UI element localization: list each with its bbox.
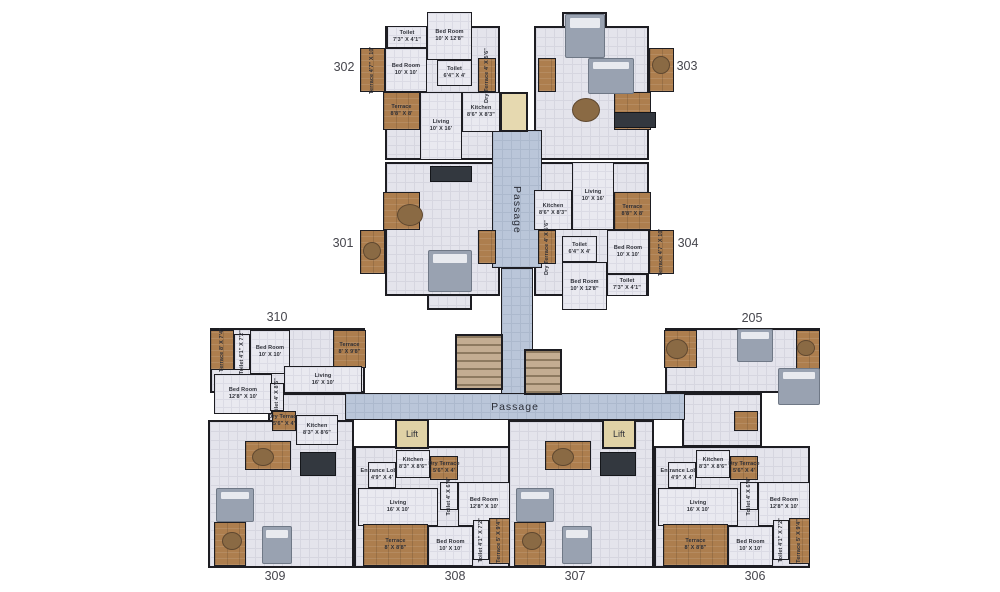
room-label: Bed Room10' X 10' (392, 63, 420, 77)
room-name: Dry Terrace (728, 461, 759, 468)
lift-label: Lift (613, 429, 625, 439)
table-301 (397, 204, 423, 226)
room-dimensions: 8'8" X 8' (621, 211, 643, 218)
room-dimensions: 12'8" X 10' (470, 504, 498, 511)
room-label: Living16' X 10' (312, 373, 334, 387)
room-name: Terrace (621, 204, 643, 211)
bed-205 (778, 368, 820, 405)
room-label: Terrace4'7" X 10' (658, 229, 665, 276)
table-205 (666, 339, 688, 359)
staircase (455, 334, 503, 390)
room-label: Terrace5' X 9'4" (796, 519, 803, 563)
room-dimensions: 10' X 10' (736, 546, 764, 553)
room-living-310: Living16' X 10' (284, 366, 362, 393)
terrace-303 (538, 58, 556, 92)
room-dimensions: 6'4" X 4' (443, 73, 465, 80)
room-toilet-302: Toilet6'4" X 4' (437, 60, 472, 86)
room-toilet-306: Toilet4' X 6'4" (740, 482, 758, 510)
lift: Lift (602, 419, 636, 449)
room-name: Toilet (568, 242, 590, 249)
room-label: Living16' X 10' (387, 500, 409, 514)
room-name: Living (582, 189, 604, 196)
room-toilet-308: Toilet4'1" X 7'2" (473, 520, 489, 560)
room-name: Kitchen (399, 457, 427, 464)
room-name: Living (430, 119, 452, 126)
unit-number-306: 306 (733, 569, 777, 583)
unit-number-310: 310 (255, 310, 299, 324)
terrace-205 (734, 411, 758, 431)
room-living-308: Living16' X 10' (358, 488, 438, 526)
bed-309 (216, 488, 254, 522)
room-label: Bed Room12'8" X 10' (470, 497, 498, 511)
room-dimensions: 16' X 10' (312, 380, 334, 387)
elevator-shaft (500, 92, 528, 132)
table-309 (222, 532, 242, 550)
room-dimensions: 8'6" X 8'3" (539, 210, 567, 217)
bed-303 (588, 58, 634, 94)
room-label: Toilet6'4" X 4' (568, 242, 590, 256)
room-bed-room-302: Bed Room10' X 12'8" (427, 12, 472, 60)
lift: Lift (395, 419, 429, 449)
room-name: Kitchen (467, 105, 495, 112)
room-label: Kitchen8'6" X 8'3" (539, 203, 567, 217)
room-label: Bed Room10' X 10' (256, 345, 284, 359)
room-kitchen-304: Kitchen8'6" X 8'3" (534, 190, 572, 230)
room-label: Bed Room10' X 10' (436, 539, 464, 553)
room-dimensions: 8'3" X 8'6" (303, 430, 331, 437)
unit-number-301: 301 (321, 236, 365, 250)
table-303 (652, 56, 670, 74)
room-dry-terrace-308: Dry Terrace5'6" X 4' (430, 456, 458, 480)
room-dimensions: 4'7" X 10' (369, 47, 375, 74)
room-bed-room-310: Bed Room12'8" X 10' (214, 374, 272, 414)
room-name: Living (312, 373, 334, 380)
room-label: Terrace8'8" X 8' (621, 204, 643, 218)
counter-309 (300, 452, 336, 476)
room-terrace-308: Terrace8' X 8'8" (363, 524, 428, 566)
terrace-301 (478, 230, 496, 264)
room-name: Toilet (778, 547, 784, 562)
room-name: Kitchen (539, 203, 567, 210)
room-entrance-lobby-308: Entrance Lobby4'9" X 4' (368, 462, 396, 488)
room-dimensions: 10' X 12'8" (570, 286, 598, 293)
room-name: Bed Room (770, 497, 798, 504)
room-dimensions: 10' X 10' (436, 546, 464, 553)
room-name: Terrace (658, 255, 664, 275)
room-label: Toilet4'1" X 7'2" (478, 518, 485, 562)
room-bed-room-308: Bed Room10' X 10' (428, 526, 473, 566)
bed-309 (262, 526, 292, 564)
room-toilet-302: Toilet7'3" X 4'1" (387, 26, 427, 48)
room-bed-room-306: Bed Room10' X 10' (728, 526, 773, 566)
room-dimensions: 16' X 10' (387, 507, 409, 514)
table-309 (252, 448, 274, 466)
room-name: Terrace (390, 104, 412, 111)
room-toilet-304: Toilet7'3" X 4'1" (607, 274, 647, 296)
bed-301 (428, 250, 472, 292)
room-bed-room-304: Bed Room10' X 10' (607, 230, 649, 274)
room-label: Dry Terrace5'6" X 4' (428, 461, 459, 475)
room-label: Bed Room12'8" X 10' (770, 497, 798, 511)
room-kitchen-310: Kitchen8'3" X 8'6" (296, 415, 338, 445)
room-label: Toilet7'3" X 4'1" (393, 30, 421, 44)
room-name: Bed Room (256, 345, 284, 352)
bed-205 (737, 329, 773, 362)
room-label: Dry Terrace5'6" X 4' (268, 414, 299, 428)
room-name: Living (387, 500, 409, 507)
room-toilet-310: Toilet4'1" X 7'2" (234, 334, 250, 370)
room-dimensions: 8' X 7'4" (219, 328, 225, 352)
unit-301-floor (427, 294, 472, 310)
room-dimensions: 5' X 9'4" (496, 519, 502, 543)
room-name: Dry Terrace (268, 414, 299, 421)
room-living-302: Living10' X 16' (420, 92, 462, 160)
table-301 (363, 242, 381, 260)
room-name: Bed Room (570, 279, 598, 286)
room-terrace-306: Terrace8' X 8'8" (663, 524, 728, 566)
room-dimensions: 10' X 10' (256, 352, 284, 359)
room-terrace-306: Terrace5' X 9'4" (789, 518, 810, 564)
room-label: Toilet4' X 6'4" (746, 477, 753, 516)
room-name: Kitchen (303, 423, 331, 430)
room-terrace-308: Terrace5' X 9'4" (489, 518, 510, 564)
room-label: Terrace8' X 7'4" (219, 328, 226, 372)
room-dimensions: 5'6" X 4' (428, 468, 459, 475)
room-terrace-304: Terrace4'7" X 10' (649, 230, 674, 274)
room-name: Bed Room (470, 497, 498, 504)
room-name: Terrace (684, 538, 706, 545)
room-terrace-302: Terrace4'7" X 10' (360, 48, 385, 92)
table-303 (572, 98, 600, 122)
room-entrance-lobby-306: Entrance Lobby4'9" X 4' (668, 462, 696, 488)
room-dimensions: 4'7" X 10' (658, 229, 664, 256)
room-label: Toilet4'1" X 7'2" (239, 330, 246, 374)
room-name: Terrace (496, 543, 502, 563)
room-label: Dry Terrace5'6" X 4' (728, 461, 759, 475)
bed-303 (565, 14, 605, 58)
room-bed-room-304: Bed Room10' X 12'8" (562, 262, 607, 310)
room-dimensions: 5'6" X 4' (728, 468, 759, 475)
room-dimensions: 10' X 10' (614, 252, 642, 259)
room-name: Bed Room (736, 539, 764, 546)
floor-plan: Terrace4'7" X 10'Bed Room10' X 10'Toilet… (0, 0, 1000, 592)
room-dimensions: 16' X 10' (687, 507, 709, 514)
room-label: Bed Room10' X 10' (614, 245, 642, 259)
room-dry-terrace-304: Dry Terrace4' X 5'6" (538, 230, 556, 264)
unit-number-309: 309 (253, 569, 297, 583)
bed-307 (516, 488, 554, 522)
room-terrace-302: Terrace8'8" X 8' (383, 92, 420, 130)
room-name: Bed Room (435, 29, 463, 36)
room-label: Bed Room10' X 12'8" (570, 279, 598, 293)
room-label: Terrace8' X 8'8" (384, 538, 406, 552)
room-label: Terrace8' X 9'8" (338, 342, 360, 356)
room-name: Terrace (384, 538, 406, 545)
room-dimensions: 8' X 8'8" (684, 545, 706, 552)
room-label: Toilet4'1" X 7'2" (778, 518, 785, 562)
room-label: Living10' X 16' (430, 119, 452, 133)
room-name: Toilet (613, 278, 641, 285)
table-205 (797, 340, 815, 356)
unit-number-205: 205 (730, 311, 774, 325)
room-name: Dry Terrace (428, 461, 459, 468)
room-dimensions: 5'6" X 4' (268, 421, 299, 428)
counter-307 (600, 452, 636, 476)
room-terrace-310: Terrace8' X 9'8" (333, 330, 366, 368)
room-label: Kitchen8'6" X 8'3" (467, 105, 495, 119)
room-name: Terrace (338, 342, 360, 349)
room-label: Kitchen8'3" X 8'6" (303, 423, 331, 437)
room-label: Terrace8'8" X 8' (390, 104, 412, 118)
room-dimensions: 8' X 9'8" (338, 349, 360, 356)
room-dry-terrace-306: Dry Terrace5'6" X 4' (730, 456, 758, 480)
room-name: Bed Room (614, 245, 642, 252)
room-dimensions: 12'8" X 10' (770, 504, 798, 511)
room-label: Terrace8' X 8'8" (684, 538, 706, 552)
room-name: Toilet (478, 547, 484, 562)
room-living-304: Living10' X 16' (572, 162, 614, 230)
room-dimensions: 5' X 9'4" (796, 519, 802, 543)
room-label: Living16' X 10' (687, 500, 709, 514)
room-label: Kitchen8'3" X 8'6" (699, 457, 727, 471)
room-toilet-308: Toilet4' X 6'4" (440, 482, 458, 510)
room-bed-room-302: Bed Room10' X 10' (385, 48, 427, 92)
room-dimensions: 10' X 16' (430, 126, 452, 133)
bed-307 (562, 526, 592, 564)
room-dimensions: 8'8" X 8' (390, 111, 412, 118)
room-dimensions: 8' X 8'8" (384, 545, 406, 552)
table-307 (552, 448, 574, 466)
room-kitchen-302: Kitchen8'6" X 8'3" (462, 92, 500, 132)
room-kitchen-308: Kitchen8'3" X 8'6" (396, 450, 430, 478)
room-dimensions: 12'8" X 10' (229, 394, 257, 401)
room-dimensions: 8'3" X 8'6" (699, 464, 727, 471)
room-name: Kitchen (699, 457, 727, 464)
room-dimensions: 10' X 10' (392, 70, 420, 77)
room-label: Terrace5' X 9'4" (496, 519, 503, 563)
room-name: Bed Room (229, 387, 257, 394)
room-dimensions: 7'3" X 4'1" (393, 37, 421, 44)
counter-301 (430, 166, 472, 182)
room-terrace-310: Terrace8' X 7'4" (210, 330, 234, 370)
room-kitchen-306: Kitchen8'3" X 8'6" (696, 450, 730, 478)
room-dimensions: 10' X 12'8" (435, 36, 463, 43)
staircase (524, 349, 562, 395)
room-dimensions: 7'3" X 4'1" (613, 285, 641, 292)
room-label: Kitchen8'3" X 8'6" (399, 457, 427, 471)
room-label: Terrace4'7" X 10' (369, 47, 376, 94)
room-dimensions: 8'3" X 8'6" (399, 464, 427, 471)
lower-corridor-band (345, 393, 685, 420)
room-label: Bed Room12'8" X 10' (229, 387, 257, 401)
room-label: Living10' X 16' (582, 189, 604, 203)
room-dry-terrace-310: Dry Terrace5'6" X 4' (272, 411, 296, 431)
room-name: Terrace (219, 352, 225, 372)
table-307 (522, 532, 542, 550)
room-dimensions: 8'6" X 8'3" (467, 112, 495, 119)
room-dimensions: 10' X 16' (582, 196, 604, 203)
room-dimensions: 6'4" X 4' (568, 249, 590, 256)
room-label: Bed Room10' X 10' (736, 539, 764, 553)
room-label: Toilet4' X 6'4" (446, 477, 453, 516)
room-dimensions: 4'1" X 7'2" (778, 518, 784, 548)
room-toilet-310: Toilet4' X 8'6" (270, 383, 284, 411)
lift-label: Lift (406, 429, 418, 439)
room-toilet-304: Toilet6'4" X 4' (562, 236, 597, 262)
room-label: Toilet6'4" X 4' (443, 66, 465, 80)
room-dry-terrace-302: Dry Terrace4' X 5'6" (478, 58, 496, 92)
room-name: Living (687, 500, 709, 507)
room-label: Toilet7'3" X 4'1" (613, 278, 641, 292)
room-terrace-304: Terrace8'8" X 8' (614, 192, 651, 230)
room-dimensions: 4'1" X 7'2" (478, 518, 484, 548)
room-name: Toilet (443, 66, 465, 73)
unit-number-308: 308 (433, 569, 477, 583)
room-name: Terrace (369, 73, 375, 93)
unit-number-307: 307 (553, 569, 597, 583)
room-living-306: Living16' X 10' (658, 488, 738, 526)
room-name: Bed Room (392, 63, 420, 70)
counter-303 (614, 112, 656, 128)
room-name: Bed Room (436, 539, 464, 546)
room-label: Bed Room10' X 12'8" (435, 29, 463, 43)
room-name: Terrace (796, 543, 802, 563)
room-name: Toilet (393, 30, 421, 37)
room-toilet-306: Toilet4'1" X 7'2" (773, 520, 789, 560)
room-dimensions: 4'1" X 7'2" (239, 330, 245, 360)
